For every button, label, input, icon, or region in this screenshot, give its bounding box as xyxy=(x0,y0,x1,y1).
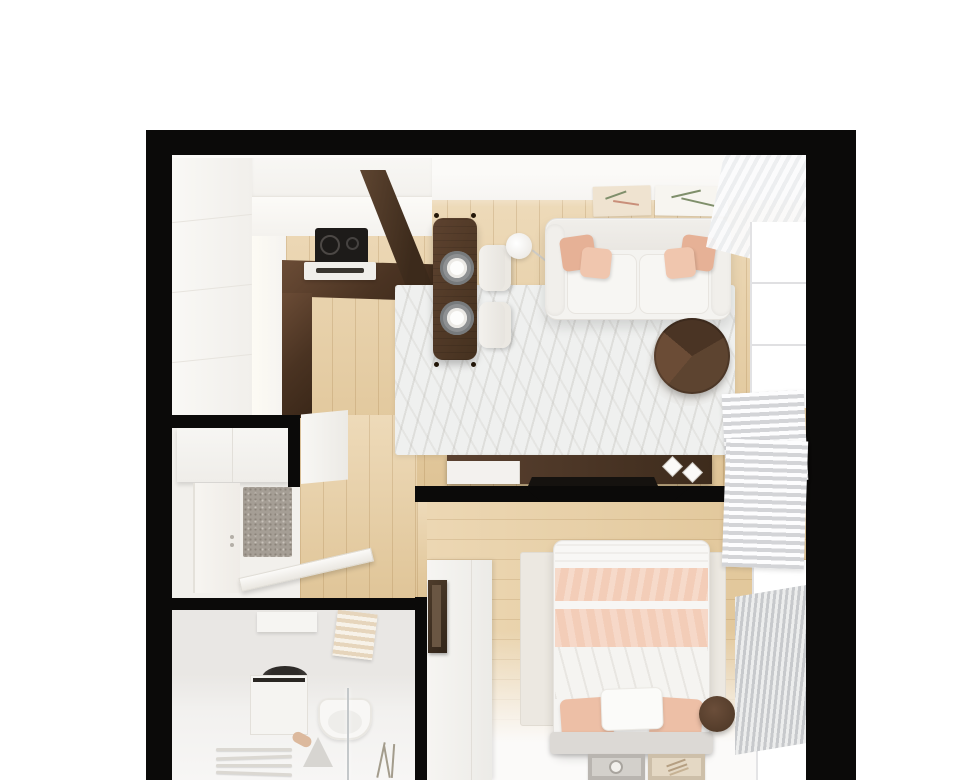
double-bed xyxy=(553,540,710,752)
oven-front xyxy=(304,262,376,280)
table-leg xyxy=(471,213,476,218)
wall-frame xyxy=(648,754,705,780)
kitchen-upper-cabinets xyxy=(252,158,432,198)
floor-lamp xyxy=(506,233,532,259)
bed-pillow-white xyxy=(600,687,663,731)
cabinet-seam xyxy=(172,284,252,293)
sheet-strip xyxy=(555,601,708,609)
apartment-plan xyxy=(146,130,856,780)
kitchen-lower-cabinet-side xyxy=(282,293,312,418)
cabinet-seam xyxy=(172,354,252,363)
kitchen-left-cabinets xyxy=(172,158,252,416)
pink-duvet-band xyxy=(555,568,708,601)
exterior-wall-right xyxy=(806,130,856,780)
exterior-wall-top xyxy=(146,130,856,155)
wardrobe-seam xyxy=(232,428,233,482)
tv-bedroom xyxy=(525,488,689,502)
cabinet-seam xyxy=(172,214,252,223)
window-mullion xyxy=(752,344,806,346)
dinner-plate xyxy=(447,258,467,278)
doormat xyxy=(243,487,292,557)
bedroom-wall xyxy=(415,597,427,780)
art-motif xyxy=(666,759,685,768)
shower-glass-panel xyxy=(347,688,349,780)
entry-door xyxy=(193,483,240,593)
art-motif xyxy=(605,191,626,200)
gathered-curtain xyxy=(722,439,808,570)
art-motif xyxy=(613,200,639,206)
art-motif xyxy=(681,197,715,207)
pink-duvet-band xyxy=(555,609,708,647)
dining-chair xyxy=(479,245,511,291)
burner-ring xyxy=(346,237,359,250)
hall-cabinet xyxy=(301,410,348,484)
door-handle xyxy=(230,535,234,539)
bathroom-wall xyxy=(172,598,417,610)
hall-wardrobe xyxy=(177,428,288,482)
table-leg xyxy=(434,362,439,367)
burner-ring xyxy=(320,235,340,255)
throw-pillow xyxy=(580,247,613,280)
folded-blanket xyxy=(555,542,708,568)
kitchen-under-cabinet-light xyxy=(252,225,286,415)
hallway-wall xyxy=(288,415,300,487)
dining-table xyxy=(433,218,477,360)
placemat xyxy=(440,251,474,285)
bedside-table xyxy=(699,696,735,732)
washer-door-seal xyxy=(253,678,305,682)
media-console-door xyxy=(447,461,520,484)
dresser-seam xyxy=(471,560,472,780)
placemat xyxy=(440,301,474,335)
tv-living-side xyxy=(528,477,658,486)
cooktop xyxy=(315,228,368,265)
towel-rack xyxy=(332,610,377,661)
bathroom-shelf xyxy=(257,612,317,632)
toilet xyxy=(318,698,372,740)
radiator xyxy=(735,585,806,755)
dining-chair xyxy=(479,302,511,348)
art-motif xyxy=(671,190,701,199)
headboard xyxy=(550,732,713,754)
window-mullion xyxy=(752,282,806,284)
hallway-wall xyxy=(172,415,300,428)
exterior-wall-left xyxy=(146,130,172,780)
washing-machine xyxy=(250,675,308,735)
dinner-plate xyxy=(447,308,467,328)
towel-ladder-rung xyxy=(216,764,292,767)
coffee-table xyxy=(654,318,730,394)
mirror xyxy=(428,580,447,653)
table-leg xyxy=(471,362,476,367)
door-handle xyxy=(230,543,234,547)
sofa xyxy=(545,218,731,320)
living-room-window xyxy=(750,222,806,408)
toilet-seat xyxy=(328,710,362,734)
wall-art xyxy=(593,185,652,217)
throw-pillow xyxy=(664,247,697,280)
towel-ladder-rung xyxy=(216,748,292,751)
wall-frame xyxy=(588,754,645,780)
bedroom-doorway-threshold xyxy=(417,502,427,597)
floorplan-render xyxy=(0,0,960,780)
oven-window xyxy=(316,268,364,273)
art-motif xyxy=(609,760,623,774)
table-leg xyxy=(434,213,439,218)
mirror-glass xyxy=(432,585,441,647)
